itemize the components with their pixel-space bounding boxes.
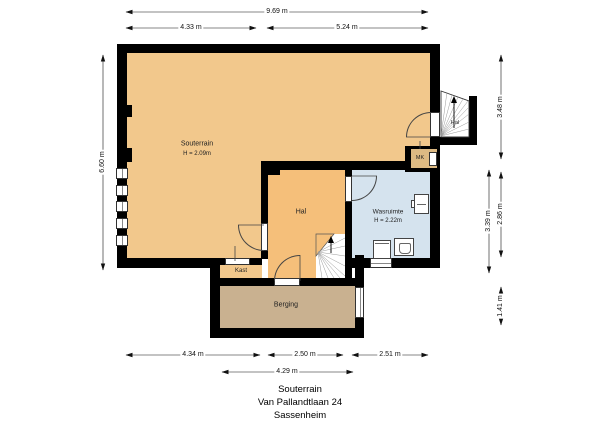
window-left-2 xyxy=(116,185,128,196)
door-souterrain-stairs xyxy=(430,112,440,137)
dim-right-3: 2.86 m xyxy=(497,201,505,226)
boiler-unit xyxy=(414,194,429,214)
dim-bottom-4: 4.29 m xyxy=(274,368,299,376)
title-city: Sassenheim xyxy=(274,410,326,421)
dim-left-total: 6.60 m xyxy=(99,149,107,174)
room-label-hal-upper: Hal xyxy=(451,120,459,126)
wall-kast-top-right xyxy=(250,258,262,265)
room-souterrain-upper xyxy=(127,53,430,161)
wall-hal-wasruimte-upper xyxy=(345,161,352,176)
dim-right-2: 3.39 m xyxy=(485,208,493,233)
dim-top-total: 9.69 m xyxy=(264,8,289,16)
title-floor: Souterrain xyxy=(278,384,322,395)
room-height-souterrain: H = 2.09m xyxy=(183,151,211,157)
dim-top-right: 5.24 m xyxy=(334,24,359,32)
door-hal-wasruimte xyxy=(345,176,352,202)
dim-bottom-2: 2.50 m xyxy=(292,351,317,359)
dim-top-left: 4.33 m xyxy=(178,24,203,32)
wall-stair-alcove-bottom xyxy=(433,137,477,145)
meterkast-door xyxy=(429,152,437,166)
room-height-wasruimte: H = 2.22m xyxy=(374,218,402,224)
room-label-souterrain: Souterrain xyxy=(181,141,213,148)
dryer xyxy=(394,238,414,256)
wall-berging-bottom xyxy=(210,328,364,338)
wall-bottom-souterrain xyxy=(117,258,220,268)
window-berging-right xyxy=(355,287,364,318)
room-label-mk: MK xyxy=(416,155,424,161)
floor-plan: Souterrain H = 2.09m Hal Wasruimte H = 2… xyxy=(0,0,600,424)
wall-stub xyxy=(268,170,280,175)
washing-machine xyxy=(373,240,391,259)
window-left-4 xyxy=(116,218,128,229)
stairs-upper-alcove xyxy=(441,91,469,137)
washing-machine-panel xyxy=(375,243,389,244)
wall-wasruimte-bottom-right xyxy=(392,258,440,268)
pillar-left-2 xyxy=(127,148,132,162)
dryer-drum-icon xyxy=(399,243,411,254)
boiler-line xyxy=(417,204,426,205)
room-label-kast: Kast xyxy=(235,268,247,274)
room-souterrain-lower xyxy=(127,161,262,258)
window-left-3 xyxy=(116,201,128,212)
wall-souterrain-hal-lower xyxy=(261,251,268,259)
room-label-hal: Hal xyxy=(296,209,307,216)
wall-right-upper xyxy=(430,44,440,112)
wall-mk-bottom xyxy=(405,168,440,172)
window-left-5 xyxy=(116,235,128,246)
wall-hal-berging-left xyxy=(210,278,274,286)
title-address: Van Pallandtlaan 24 xyxy=(258,397,342,408)
wall-wasruimte-bottom-left xyxy=(345,258,370,268)
wall-souterrain-hal-upper xyxy=(261,161,268,223)
dim-bottom-1: 4.34 m xyxy=(180,351,205,359)
wall-hal-wasruimte-lower xyxy=(345,202,352,286)
dim-right-1: 3.48 m xyxy=(497,94,505,119)
stairs-hal xyxy=(316,234,345,278)
pillar-left-1 xyxy=(127,105,132,117)
dim-bottom-3: 2.51 m xyxy=(377,351,402,359)
wall-berging-left xyxy=(210,258,220,338)
door-kast xyxy=(225,258,250,265)
wall-berging-right-lower xyxy=(355,318,364,338)
window-wasruimte-bottom xyxy=(370,258,392,268)
wall-top xyxy=(117,44,440,53)
room-label-wasruimte: Wasruimte xyxy=(373,209,404,216)
boiler-tab xyxy=(411,200,415,208)
room-label-berging: Berging xyxy=(274,302,298,309)
window-left-1 xyxy=(116,168,128,179)
dim-right-4: 1.41 m xyxy=(497,293,505,318)
